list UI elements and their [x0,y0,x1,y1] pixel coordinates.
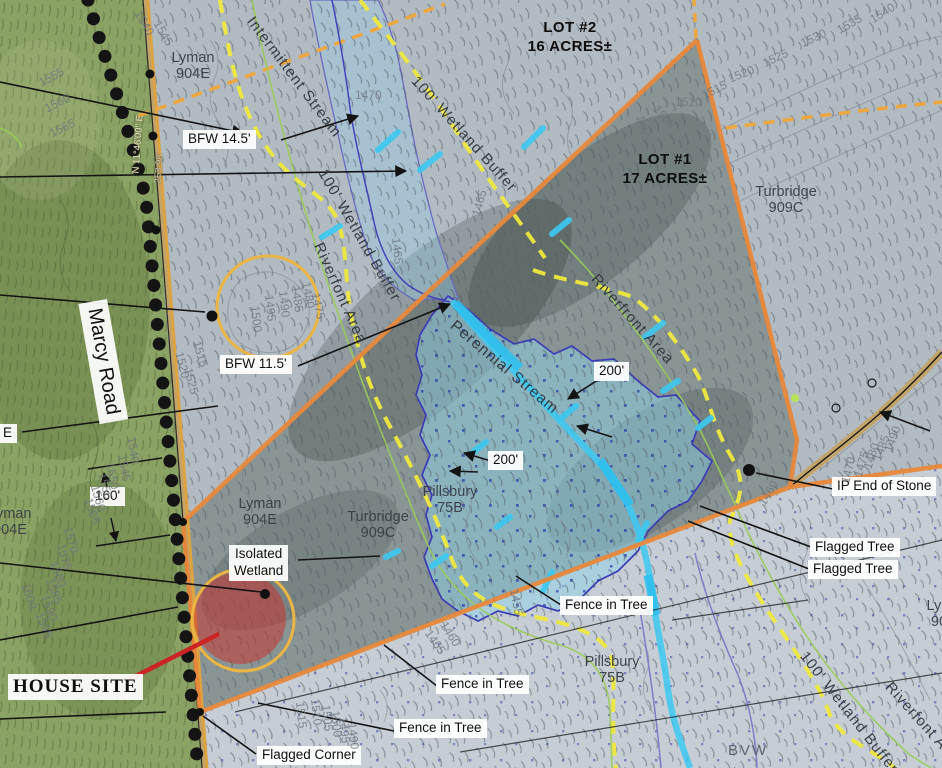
contour-label: 1465 [469,188,489,217]
lot1-area: 17 ACRES± [623,170,708,189]
contour-label: 1540 [867,0,897,26]
contour-label: 1545 [151,18,176,48]
contour-label: 1600 [19,581,41,611]
contour-label: 1495 [633,113,653,142]
flagged-corner-label: Flagged Corner [257,746,361,765]
contour-label: 1555 [36,65,66,90]
soil-lyman-mid: Lyman 904E [239,496,282,528]
soil-pillsbury-bottom: Pillsbury 75B [585,654,640,686]
soil-lyman-top: Lyman 904E [172,50,215,82]
soil-lyman-right-edge: Lyman 904E [927,598,942,630]
map-labels: LOT #2 16 ACRES± LOT #1 17 ACRES± Lyman … [0,0,942,768]
flagged-tree-label-1: Flagged Tree [810,538,900,557]
contour-label: 1475 [309,291,328,320]
lot2-area: 16 ACRES± [528,38,613,57]
contour-label: 1515 [699,78,729,103]
contour-label: 1565 [47,116,77,140]
contour-label: 1525 [760,46,790,70]
road-distance: 253.98' [153,152,166,184]
lot1-label: LOT #1 17 ACRES± [623,151,708,189]
contour-label: 1515 [293,701,310,729]
soil-turbridge-mid: Turbridge 909C [347,509,409,541]
fence-in-tree-label-3: Fence in Tree [560,596,653,615]
contour-label: 1455 [507,588,525,617]
plat-map: LOT #2 16 ACRES± LOT #1 17 ACRES± Lyman … [0,0,942,768]
contour-label: 1535 [834,11,864,36]
marcy-road-label: Marcy Road [78,299,128,424]
road-bearing: N 11°46'00" E [131,115,146,174]
soil-pillsbury-mid: Pillsbury 75B [423,484,478,516]
isolated-wetland-label: Isolated Wetland [229,545,288,581]
lot2-title: LOT #2 [528,19,613,38]
riverfront-area-label: Riverfront Area [588,271,678,368]
contour-label: 1525 [181,366,201,395]
bfw-115-label: BFW 11.5' [220,355,292,374]
soil-turbridge-right: Turbridge 909C [755,184,817,216]
wetland-buffer-label-top: 100' Wetland Buffer [408,73,521,196]
contour-label: 1560 [42,91,72,115]
contour-label: 1520 [726,63,756,86]
bvw-label: BVW [728,742,768,759]
contour-label: 1475 [371,260,391,289]
dim-200-label-1: 200' [594,362,629,381]
dim-200-label-2: 200' [488,451,523,470]
lot1-title: LOT #1 [623,151,708,170]
fence-in-tree-label-2: Fence in Tree [436,675,529,694]
contour-label: 1530 [798,26,828,50]
bfw-145-label: BFW 14.5' [183,130,256,149]
lot2-label: LOT #2 16 ACRES± [528,19,613,57]
contour-label: 1500 [248,305,265,333]
contour-label: 1515 [190,339,211,369]
contour-label: 1460 [755,478,781,508]
soil-lyman-left-edge: Lyman 904E [0,506,31,538]
flagged-tree-label-2: Flagged Tree [808,560,898,579]
contour-label: 1465 [389,237,406,265]
intermittent-stream-label: Intermittent Stream [243,13,345,140]
edge-label-e: E [0,424,17,443]
contour-label: 1470 [355,88,382,102]
perennial-stream-label: Perennial Stream [446,317,562,418]
fence-in-tree-label-1: Fence in Tree [394,719,487,738]
contour-label: 1490 [881,424,903,454]
wetland-buffer-label-bottom: 100' Wetland Buffer [796,648,902,768]
contour-label: 1490 [345,722,362,750]
contour-label: 1510 [675,95,702,109]
house-site-label: HOUSE SITE [8,674,143,700]
